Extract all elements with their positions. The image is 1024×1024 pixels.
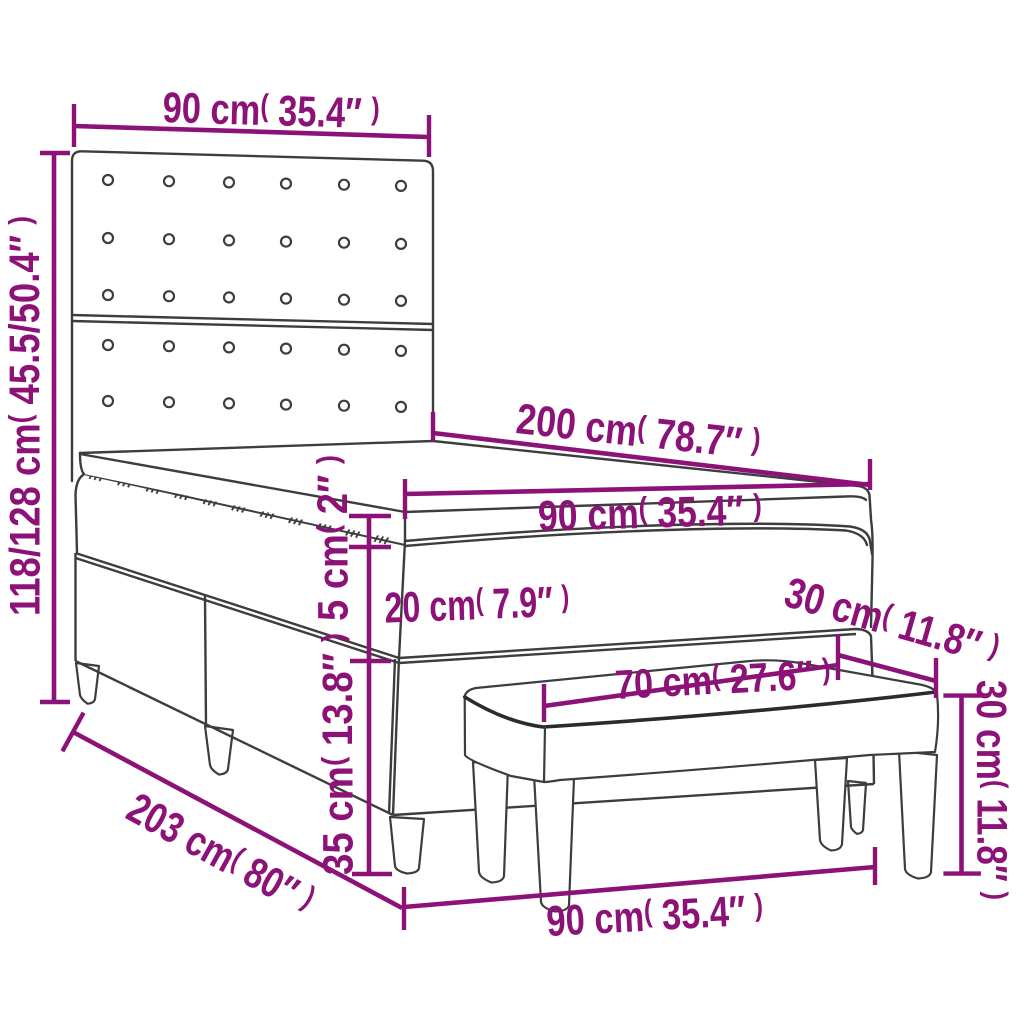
svg-text:90 cm( 35.4″ ): 90 cm( 35.4″ ) — [537, 487, 762, 541]
svg-text:35 cm( 13.8″ ): 35 cm( 13.8″ ) — [314, 633, 362, 875]
svg-text:30 cm( 11.8″ ): 30 cm( 11.8″ ) — [967, 680, 1015, 900]
svg-text:90 cm( 35.4″ ): 90 cm( 35.4″ ) — [162, 84, 380, 139]
svg-text:5 cm( 2″ ): 5 cm( 2″ ) — [309, 455, 357, 621]
